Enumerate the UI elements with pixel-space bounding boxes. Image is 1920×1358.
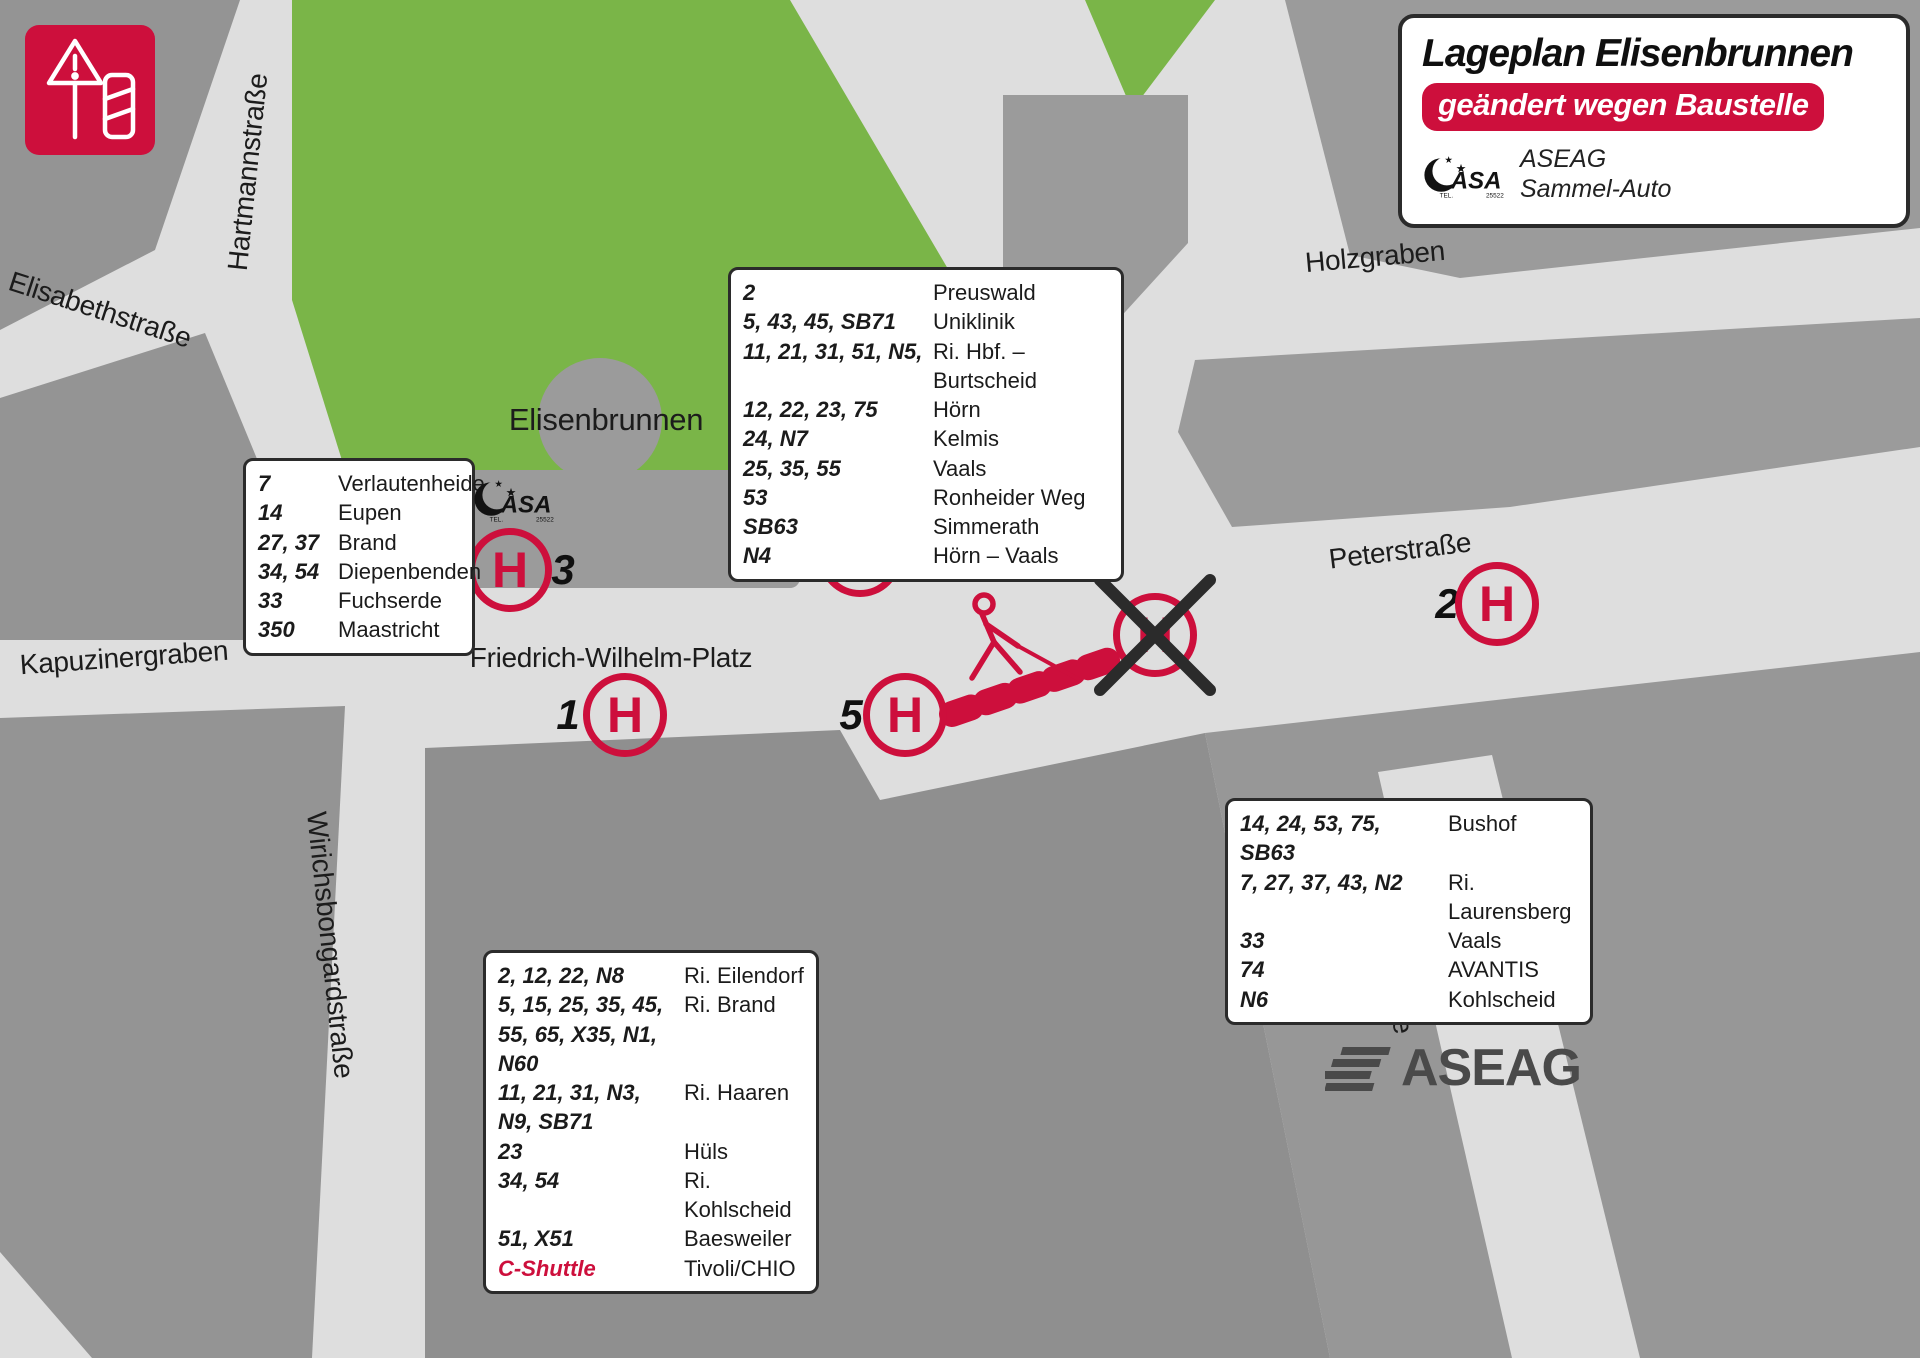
halt-letter: H xyxy=(492,545,528,595)
route-destination: Baesweiler xyxy=(684,1224,804,1253)
route-row: 5, 15, 25, 35, 45, 55, 65, X35, N1, N60 … xyxy=(498,990,804,1078)
bus-stop-2[interactable]: H xyxy=(1455,562,1539,646)
route-destination: Tivoli/CHIO xyxy=(684,1254,804,1283)
route-row: 7 Verlautenheide xyxy=(258,469,460,498)
route-row: N6 Kohlscheid xyxy=(1240,985,1578,1014)
title-card: Lageplan Elisenbrunnen geändert wegen Ba… xyxy=(1398,14,1910,228)
route-destination: Vaals xyxy=(933,454,1109,483)
route-numbers: 14 xyxy=(258,498,338,527)
asa-sammel-auto-logo: ★ ★ ASA TEL. 25522 xyxy=(1422,150,1506,200)
route-destination: Simmerath xyxy=(933,512,1109,541)
route-destination: Ri. Kohlscheid xyxy=(684,1166,804,1225)
route-numbers: 7 xyxy=(258,469,338,498)
route-row: 350 Maastricht xyxy=(258,615,460,644)
route-numbers: 12, 22, 23, 75 xyxy=(743,395,933,424)
construction-sign-icon xyxy=(25,25,155,155)
route-destination: Kohlscheid xyxy=(1448,985,1578,1014)
route-row: N4 Hörn – Vaals xyxy=(743,541,1109,570)
route-destination: Uniklinik xyxy=(933,307,1109,336)
route-destination: Diepenbenden xyxy=(338,557,481,586)
route-row: 25, 35, 55 Vaals xyxy=(743,454,1109,483)
construction-sign-drawing xyxy=(25,25,155,155)
route-numbers: 34, 54 xyxy=(498,1166,684,1225)
route-numbers: SB63 xyxy=(743,512,933,541)
route-numbers: 25, 35, 55 xyxy=(743,454,933,483)
route-destination: Bushof xyxy=(1448,809,1578,868)
route-destination: Eupen xyxy=(338,498,460,527)
halt-letter: H xyxy=(607,690,643,740)
route-destination: Ri. Haaren xyxy=(684,1078,804,1137)
route-destination: AVANTIS xyxy=(1448,955,1578,984)
route-row: 14 Eupen xyxy=(258,498,460,527)
halt-letter: H xyxy=(1137,610,1173,660)
route-row: 11, 21, 31, N3, N9, SB71 Ri. Haaren xyxy=(498,1078,804,1137)
route-destination: Fuchserde xyxy=(338,586,460,615)
route-destination: Kelmis xyxy=(933,424,1109,453)
route-box-stop2: 14, 24, 53, 75, SB63 Bushof 7, 27, 37, 4… xyxy=(1225,798,1593,1025)
bus-stop-5[interactable]: H xyxy=(863,673,947,757)
page-title: Lageplan Elisenbrunnen xyxy=(1422,32,1886,76)
route-numbers: 11, 21, 31, 51, N5, xyxy=(743,337,933,396)
halt-letter: H xyxy=(1479,579,1515,629)
route-destination: Ri. Brand xyxy=(684,990,804,1078)
operator-line1: ASEAG xyxy=(1520,145,1671,175)
route-box-stop3: 7 Verlautenheide 14 Eupen 27, 37 Brand 3… xyxy=(243,458,475,656)
bus-stop-1[interactable]: H xyxy=(583,673,667,757)
aseag-brand: ASEAG xyxy=(1325,1038,1581,1098)
route-numbers: 5, 15, 25, 35, 45, 55, 65, X35, N1, N60 xyxy=(498,990,684,1078)
route-row: 51, X51 Baesweiler xyxy=(498,1224,804,1253)
route-numbers: 33 xyxy=(1240,926,1448,955)
operator-row: ★ ★ ASA TEL. 25522 ASEAG Sammel-Auto xyxy=(1422,145,1886,204)
route-numbers: 11, 21, 31, N3, N9, SB71 xyxy=(498,1078,684,1137)
route-numbers: 27, 37 xyxy=(258,528,338,557)
route-row: 5, 43, 45, SB71 Uniklinik xyxy=(743,307,1109,336)
route-numbers: 5, 43, 45, SB71 xyxy=(743,307,933,336)
asa-tel: TEL. xyxy=(490,516,504,523)
route-row: 53 Ronheider Weg xyxy=(743,483,1109,512)
asa-sammel-auto-logo: ★ ★ ASA TEL. 25522 xyxy=(472,474,556,524)
route-row: 11, 21, 31, 51, N5, Ri. Hbf. – Burtschei… xyxy=(743,337,1109,396)
route-box-stop1: 2, 12, 22, N8 Ri. Eilendorf 5, 15, 25, 3… xyxy=(483,950,819,1294)
route-row: 23 Hüls xyxy=(498,1137,804,1166)
route-numbers: 2, 12, 22, N8 xyxy=(498,961,684,990)
route-numbers: N4 xyxy=(743,541,933,570)
route-numbers: 23 xyxy=(498,1137,684,1166)
route-destination: Ri. Laurensberg xyxy=(1448,868,1578,927)
bus-stop-closed: H xyxy=(1113,593,1197,677)
route-destination: Hüls xyxy=(684,1137,804,1166)
star-icon: ★ xyxy=(1444,155,1453,166)
route-numbers: N6 xyxy=(1240,985,1448,1014)
route-numbers: 24, N7 xyxy=(743,424,933,453)
route-row: 27, 37 Brand xyxy=(258,528,460,557)
route-numbers: 2 xyxy=(743,278,933,307)
route-numbers: 33 xyxy=(258,586,338,615)
operator-line2: Sammel-Auto xyxy=(1520,175,1671,205)
route-row: 34, 54 Diepenbenden xyxy=(258,557,460,586)
route-row: 24, N7 Kelmis xyxy=(743,424,1109,453)
operator-name: ASEAG Sammel-Auto xyxy=(1520,145,1671,204)
route-numbers: C-Shuttle xyxy=(498,1254,684,1283)
stop-number-5: 5 xyxy=(839,691,862,739)
asa-number: 25522 xyxy=(536,516,554,523)
route-row: SB63 Simmerath xyxy=(743,512,1109,541)
route-destination: Brand xyxy=(338,528,460,557)
route-numbers: 51, X51 xyxy=(498,1224,684,1253)
route-numbers: 53 xyxy=(743,483,933,512)
route-destination: Ronheider Weg xyxy=(933,483,1109,512)
building-block xyxy=(0,706,345,1358)
stop-number-1: 1 xyxy=(556,691,579,739)
asa-text: ASA xyxy=(1450,167,1502,194)
halt-letter: H xyxy=(887,690,923,740)
route-numbers: 74 xyxy=(1240,955,1448,984)
route-row: 7, 27, 37, 43, N2 Ri. Laurensberg xyxy=(1240,868,1578,927)
star-icon: ★ xyxy=(494,479,503,490)
route-destination: Verlautenheide xyxy=(338,469,485,498)
route-row: 74 AVANTIS xyxy=(1240,955,1578,984)
map-page: Hartmannstraße Elisabethstraße Kapuziner… xyxy=(0,0,1920,1358)
route-destination: Hörn xyxy=(933,395,1109,424)
route-row: 2, 12, 22, N8 Ri. Eilendorf xyxy=(498,961,804,990)
route-row: 33 Fuchserde xyxy=(258,586,460,615)
route-destination: Ri. Hbf. – Burtscheid xyxy=(933,337,1109,396)
route-numbers: 350 xyxy=(258,615,338,644)
route-row: 33 Vaals xyxy=(1240,926,1578,955)
route-row: 14, 24, 53, 75, SB63 Bushof xyxy=(1240,809,1578,868)
street-label-friedrich-wilhelm-platz: Friedrich-Wilhelm-Platz xyxy=(470,642,752,674)
route-row: 12, 22, 23, 75 Hörn xyxy=(743,395,1109,424)
street-label-elisenbrunnen: Elisenbrunnen xyxy=(509,402,703,438)
route-destination: Hörn – Vaals xyxy=(933,541,1109,570)
route-destination: Vaals xyxy=(1448,926,1578,955)
asa-number: 25522 xyxy=(1486,192,1504,199)
route-destination: Ri. Eilendorf xyxy=(684,961,804,990)
route-numbers: 14, 24, 53, 75, SB63 xyxy=(1240,809,1448,868)
route-box-stop4: 2 Preuswald 5, 43, 45, SB71 Uniklinik 11… xyxy=(728,267,1124,582)
stop-number-3: 3 xyxy=(551,546,574,594)
route-numbers: 7, 27, 37, 43, N2 xyxy=(1240,868,1448,927)
route-destination: Maastricht xyxy=(338,615,460,644)
route-row: C-Shuttle Tivoli/CHIO xyxy=(498,1254,804,1283)
route-row: 34, 54 Ri. Kohlscheid xyxy=(498,1166,804,1225)
aseag-logo-text: ASEAG xyxy=(1401,1038,1581,1098)
construction-badge: geändert wegen Baustelle xyxy=(1422,83,1824,131)
aseag-logo-icon xyxy=(1325,1039,1391,1097)
route-numbers: 34, 54 xyxy=(258,557,338,586)
route-row: 2 Preuswald xyxy=(743,278,1109,307)
asa-tel: TEL. xyxy=(1440,192,1454,199)
asa-text: ASA xyxy=(500,492,552,519)
route-destination: Preuswald xyxy=(933,278,1109,307)
